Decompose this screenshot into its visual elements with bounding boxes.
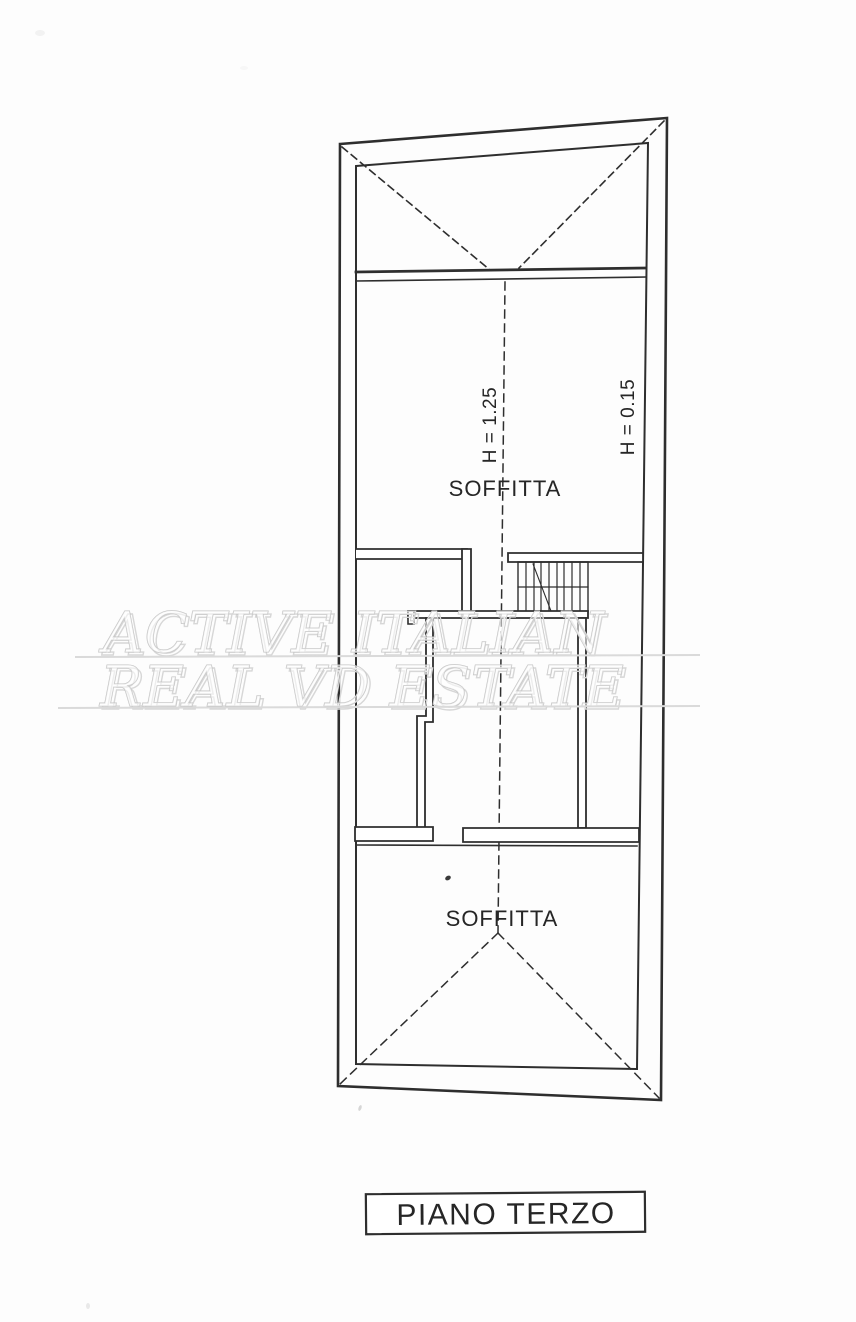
watermark: ACTIVE ITALIAN ACTIVE ITALIAN REAL VD ES…: [58, 601, 700, 723]
roof-section-bottom: [339, 933, 659, 1098]
floor-plan-drawing: SOFFITTA SOFFITTA H = 1.25 H = 0.15 ACTI…: [0, 0, 856, 1322]
lower-band-walls: [355, 827, 639, 846]
title-box: PIANO TERZO: [366, 1192, 645, 1234]
room-label-soffitta-upper: SOFFITTA: [449, 476, 562, 501]
room-label-soffitta-lower: SOFFITTA: [446, 906, 559, 931]
height-annotation-right: H = 0.15: [618, 379, 639, 455]
floor-title: PIANO TERZO: [396, 1197, 616, 1232]
watermark-line2: REAL VD ESTATE: [99, 655, 625, 720]
height-annotation-center: H = 1.25: [480, 387, 501, 463]
scanned-floor-plan-page: SOFFITTA SOFFITTA H = 1.25 H = 0.15 ACTI…: [0, 0, 856, 1322]
